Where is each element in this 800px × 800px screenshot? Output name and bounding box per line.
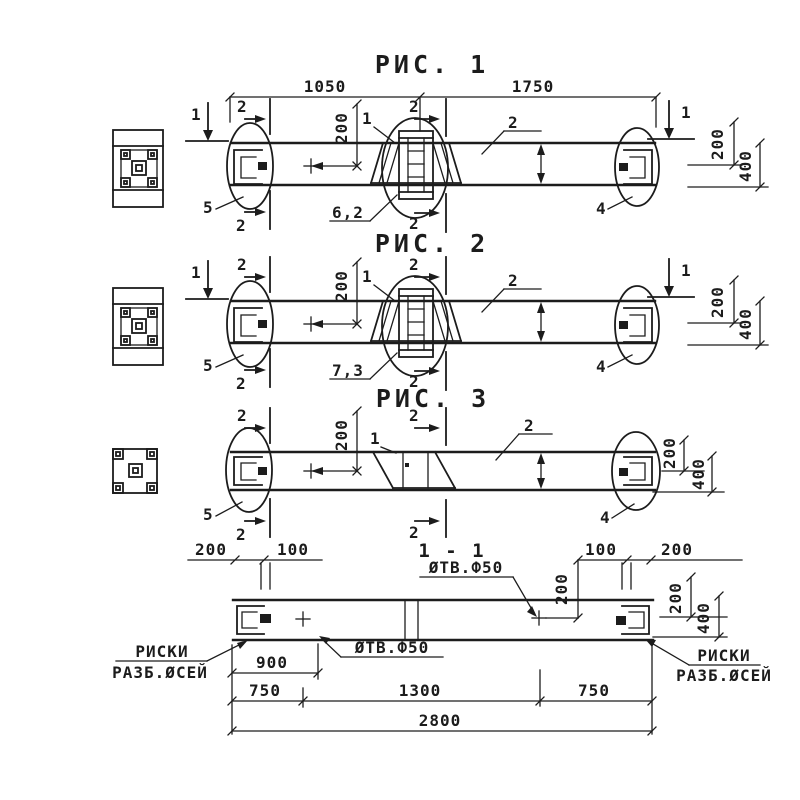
weld-mark-label: 7,3 bbox=[332, 361, 364, 380]
cut-mark-label: 2 bbox=[237, 97, 248, 116]
riski-label-line1: РИСКИ bbox=[135, 642, 188, 661]
riski-label-line2: РАЗБ.ØСЕЙ bbox=[112, 663, 208, 682]
dim-1050-1750: 1050 1750 bbox=[226, 77, 660, 131]
cut-mark-label: 2 bbox=[237, 406, 248, 425]
dim-100-label: 100 bbox=[585, 540, 617, 559]
dim-1300-label: 1300 bbox=[399, 681, 442, 700]
cut-mark-label: 2 bbox=[409, 406, 420, 425]
label-5: 5 bbox=[203, 198, 214, 217]
cut-mark-label: 2 bbox=[236, 216, 247, 235]
drawing-sheet: 1 1 2 2 2 2 bbox=[0, 0, 800, 800]
dim-200-label: 200 bbox=[660, 437, 679, 469]
figure-body: 1 1 2 2 2 2 bbox=[113, 97, 768, 235]
beam-outline bbox=[231, 452, 655, 490]
section-mark-label: 1 bbox=[681, 103, 692, 122]
hole-callout-top: ØТВ.Ф50 200 bbox=[420, 556, 582, 625]
dims-right-200-400: 200 400 bbox=[688, 118, 768, 191]
dim-400-label: 400 bbox=[689, 458, 708, 490]
riski-label-line1: РИСКИ bbox=[697, 646, 750, 665]
label-4: 4 bbox=[600, 508, 611, 527]
dim-200-label: 200 bbox=[666, 582, 685, 614]
mid-span-height-mark bbox=[537, 453, 545, 489]
dims-top-right: 100 200 bbox=[578, 540, 742, 589]
left-end-embed bbox=[234, 150, 267, 184]
left-end-embed bbox=[237, 606, 310, 634]
hole-label: ØТВ.Ф50 bbox=[428, 558, 503, 577]
dim-900-label: 900 bbox=[256, 653, 288, 672]
figure-3: РИС. 3 bbox=[113, 384, 724, 544]
section-1-marker-right: 1 bbox=[648, 101, 694, 139]
section-1-marker-left: 1 bbox=[186, 103, 228, 141]
end-cross-section-view bbox=[113, 130, 163, 207]
section-mark-label: 1 bbox=[191, 105, 202, 124]
weld-label-6-2: 6,2 bbox=[330, 195, 397, 222]
dim-750-label: 750 bbox=[578, 681, 610, 700]
dim-100-label: 100 bbox=[277, 540, 309, 559]
label-beam-2: 2 bbox=[508, 113, 519, 132]
weld-mark-label: 6,2 bbox=[332, 203, 364, 222]
dims-right-200-400: 200 400 bbox=[653, 573, 727, 641]
dim-200-label: 200 bbox=[195, 540, 227, 559]
right-end-embed bbox=[616, 606, 649, 634]
riski-callout-left: РИСКИ РАЗБ.ØСЕЙ bbox=[112, 640, 248, 682]
right-end-embed bbox=[619, 150, 652, 184]
riski-label-line2: РАЗБ.ØСЕЙ bbox=[676, 666, 772, 685]
cut-mark-label: 2 bbox=[236, 525, 247, 544]
dim-400-label: 400 bbox=[694, 602, 713, 634]
figure-2-title: РИС. 2 bbox=[375, 229, 489, 258]
beam-outline bbox=[233, 600, 653, 640]
center-joint-detail bbox=[371, 118, 461, 218]
weld-label-7-3: 7,3 bbox=[330, 353, 397, 380]
dims-right-200-400: 200 400 bbox=[653, 436, 724, 496]
dim-200-label: 200 bbox=[661, 540, 693, 559]
left-end-embed bbox=[234, 457, 267, 485]
dim-750-label: 750 bbox=[249, 681, 281, 700]
dims-top-left: 200 100 bbox=[188, 540, 322, 589]
dim-200-label: 200 bbox=[708, 128, 727, 160]
figure-2-body bbox=[113, 255, 768, 393]
dim-1050-label: 1050 bbox=[304, 77, 347, 96]
mid-span-height-mark bbox=[537, 144, 545, 184]
dim-400-label: 400 bbox=[736, 150, 755, 182]
end-cross-section-view bbox=[113, 449, 157, 493]
dim-2800-label: 2800 bbox=[419, 711, 462, 730]
riski-callout-right: РИСКИ РАЗБ.ØСЕЙ bbox=[645, 639, 772, 685]
label-beam-2: 2 bbox=[524, 416, 535, 435]
dim-200-label: 200 bbox=[332, 112, 351, 144]
dim-1750-label: 1750 bbox=[512, 77, 555, 96]
label-detail-1: 1 bbox=[370, 429, 381, 448]
label-4: 4 bbox=[596, 199, 607, 218]
technical-drawing: 1 1 2 2 2 2 bbox=[0, 0, 800, 800]
right-end-embed bbox=[619, 457, 652, 485]
part-labels: 5 4 2 1 bbox=[203, 416, 634, 527]
center-joint-detail bbox=[373, 452, 455, 488]
dim-200-center-offset: 200 bbox=[304, 100, 361, 173]
section-1-1: 1 - 1 ØТВ.Ф50 200 200 100 bbox=[112, 540, 772, 735]
label-detail-1: 1 bbox=[362, 109, 373, 128]
label-5: 5 bbox=[203, 505, 214, 524]
hole-label: ØТВ.Ф50 bbox=[354, 638, 429, 657]
figure-1-title: РИС. 1 bbox=[375, 50, 489, 79]
figure-3-title: РИС. 3 bbox=[376, 384, 490, 413]
dim-200-label: 200 bbox=[332, 419, 351, 451]
dim-200-center-offset: 200 bbox=[304, 407, 361, 478]
